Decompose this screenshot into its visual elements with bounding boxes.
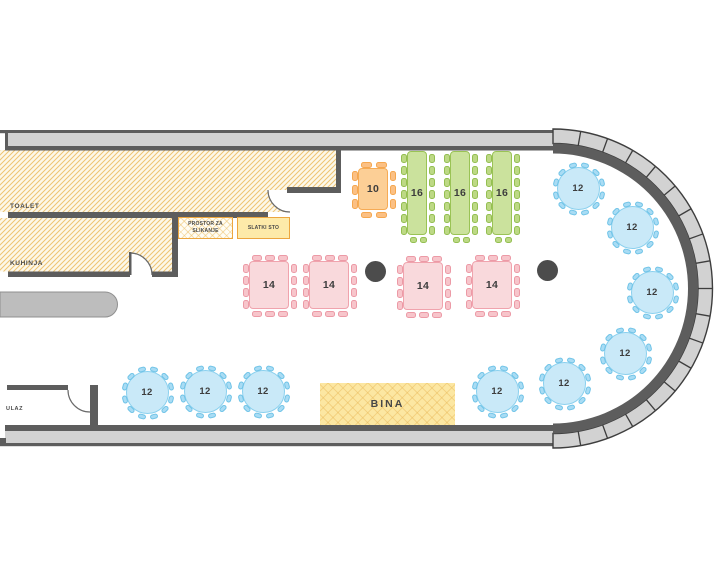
table-seat-count: 16 [496, 187, 508, 199]
chair [237, 381, 244, 390]
chair [351, 276, 357, 285]
chair [604, 332, 613, 341]
chair [486, 214, 492, 223]
chair [432, 312, 442, 318]
chair [338, 311, 348, 317]
chair [599, 178, 606, 187]
table-square-pink[interactable]: 14 [403, 262, 443, 310]
chair [635, 248, 644, 255]
chair [218, 404, 227, 413]
table-seat-count: 12 [626, 222, 637, 233]
chair [466, 288, 472, 297]
chair [471, 381, 478, 390]
chair [501, 311, 511, 317]
photo-area-box: PROSTOR ZA SLIKANJE [178, 217, 233, 239]
chair [137, 366, 146, 373]
chair [390, 199, 396, 210]
chair [237, 394, 244, 403]
chair [284, 394, 291, 403]
chair [486, 166, 492, 175]
chair [121, 382, 128, 391]
chair [628, 327, 637, 334]
chair [303, 276, 309, 285]
chair [488, 255, 498, 261]
chair [429, 202, 435, 211]
chair [568, 209, 577, 216]
table-long-green[interactable]: 16 [450, 151, 470, 235]
table-seat-count: 16 [454, 187, 466, 199]
chair [487, 365, 496, 372]
chair [406, 256, 416, 262]
chair [266, 412, 275, 419]
chair [655, 313, 664, 320]
chair [445, 301, 451, 310]
chair [514, 300, 520, 309]
chair [604, 366, 613, 375]
chair [444, 166, 450, 175]
chair [599, 356, 606, 365]
chair [486, 178, 492, 187]
chair [665, 271, 674, 280]
chair [622, 201, 631, 208]
chair [472, 190, 478, 199]
stage-box: BINA [320, 383, 455, 425]
table-seat-count: 14 [417, 280, 429, 292]
chair [655, 266, 664, 273]
chair [401, 214, 407, 223]
chair [518, 394, 525, 403]
chair [585, 373, 592, 382]
chair [243, 276, 249, 285]
chair [514, 166, 520, 175]
chair [390, 185, 396, 196]
chair [514, 264, 520, 273]
chair [638, 332, 647, 341]
chair [429, 190, 435, 199]
chair [195, 412, 204, 419]
chair [444, 226, 450, 235]
table-seat-count: 12 [199, 386, 210, 397]
chair [500, 365, 509, 372]
chair [253, 365, 262, 372]
chair [475, 255, 485, 261]
chair [419, 256, 429, 262]
chair [500, 412, 509, 419]
chair [397, 301, 403, 310]
chair [265, 311, 275, 317]
sweet-table-box: SLATKI STO [237, 217, 290, 239]
chair [410, 237, 417, 243]
chair [278, 311, 288, 317]
chair [278, 255, 288, 261]
table-long-green[interactable]: 16 [407, 151, 427, 235]
chair [401, 178, 407, 187]
chair [514, 202, 520, 211]
chair [242, 370, 251, 379]
chair [476, 370, 485, 379]
table-round-blue[interactable]: 12 [184, 370, 227, 413]
chair [150, 413, 159, 420]
chair [253, 412, 262, 419]
chair [397, 277, 403, 286]
table-seat-count: 12 [572, 183, 583, 194]
chair [284, 381, 291, 390]
table-seat-count: 16 [411, 187, 423, 199]
chair [486, 190, 492, 199]
chair [351, 300, 357, 309]
chair [445, 289, 451, 298]
chair [376, 212, 387, 218]
chair [626, 282, 633, 291]
chair [218, 370, 227, 379]
chair [642, 266, 651, 273]
chair [552, 191, 559, 200]
chair [160, 405, 169, 414]
table-long-green[interactable]: 16 [492, 151, 512, 235]
chair [401, 202, 407, 211]
chair [591, 201, 600, 210]
chair [351, 264, 357, 273]
chair [488, 311, 498, 317]
chair [463, 237, 470, 243]
chair [168, 395, 175, 404]
chair [554, 357, 563, 364]
chair [543, 362, 552, 371]
chair [543, 396, 552, 405]
chair [606, 230, 613, 239]
chair [486, 226, 492, 235]
chair [538, 386, 545, 395]
chair [352, 199, 358, 210]
chair [653, 217, 660, 226]
chair [429, 214, 435, 223]
chair [606, 217, 613, 226]
chair [429, 178, 435, 187]
chair [645, 206, 654, 215]
chair [472, 154, 478, 163]
chair [472, 202, 478, 211]
chair [631, 271, 640, 280]
chair [419, 312, 429, 318]
tables-layer: 1212121212121212121414141416161610 [0, 0, 722, 578]
chair [208, 412, 217, 419]
chair [276, 370, 285, 379]
pillar [537, 260, 558, 281]
chair [626, 295, 633, 304]
chair [243, 264, 249, 273]
ulaz-label: ULAZ [6, 406, 23, 412]
chair [466, 300, 472, 309]
chair [510, 404, 519, 413]
chair [242, 404, 251, 413]
chair [514, 154, 520, 163]
chair [276, 404, 285, 413]
chair [126, 371, 135, 380]
table-round-blue[interactable]: 12 [476, 370, 519, 413]
chair [567, 357, 576, 364]
chair [265, 255, 275, 261]
chair [611, 240, 620, 249]
chair [444, 154, 450, 163]
chair [538, 373, 545, 382]
chair [352, 171, 358, 182]
chair [291, 300, 297, 309]
chair [599, 191, 606, 200]
chair [303, 264, 309, 273]
chair [615, 327, 624, 334]
table-round-blue[interactable]: 12 [543, 362, 586, 405]
chair [514, 226, 520, 235]
chair [642, 313, 651, 320]
chair [645, 240, 654, 249]
chair [510, 370, 519, 379]
chair [303, 288, 309, 297]
table-square-pink[interactable]: 14 [249, 261, 289, 309]
table-seat-count: 12 [141, 387, 152, 398]
chair [208, 365, 217, 372]
chair [472, 166, 478, 175]
chair [554, 404, 563, 411]
table-round-blue[interactable]: 12 [631, 271, 674, 314]
chair [291, 264, 297, 273]
chair [581, 162, 590, 169]
photo-area-label: PROSTOR ZA SLIKANJE [188, 221, 223, 235]
chair [401, 190, 407, 199]
chair [628, 374, 637, 381]
chair [518, 381, 525, 390]
chair [137, 413, 146, 420]
chair [653, 230, 660, 239]
chair [312, 311, 322, 317]
chair [577, 362, 586, 371]
chair [514, 276, 520, 285]
chair [622, 248, 631, 255]
chair [615, 374, 624, 381]
chair [420, 237, 427, 243]
table-round-blue[interactable]: 12 [126, 371, 169, 414]
chair [466, 276, 472, 285]
chair [665, 305, 674, 314]
chair [121, 395, 128, 404]
chair [472, 226, 478, 235]
chair [466, 264, 472, 273]
chair [445, 277, 451, 286]
table-round-blue[interactable]: 12 [242, 370, 285, 413]
table-seat-count: 14 [263, 279, 275, 291]
chair [195, 365, 204, 372]
chair [432, 256, 442, 262]
pillar [365, 261, 386, 282]
chair [338, 255, 348, 261]
table-seat-count: 12 [491, 386, 502, 397]
table-seat-count: 12 [257, 386, 268, 397]
chair [168, 382, 175, 391]
table-seat-count: 12 [646, 287, 657, 298]
chair [325, 311, 335, 317]
table-square-pink[interactable]: 14 [472, 261, 512, 309]
chair [599, 343, 606, 352]
chair [552, 178, 559, 187]
toalet-label: TOALET [10, 203, 39, 210]
chair [486, 154, 492, 163]
chair [361, 212, 372, 218]
chair [585, 386, 592, 395]
chair [401, 154, 407, 163]
chair [226, 394, 233, 403]
chair [376, 162, 387, 168]
chair [179, 381, 186, 390]
chair [673, 282, 680, 291]
table-seat-count: 10 [367, 183, 379, 195]
table-square-pink[interactable]: 14 [309, 261, 349, 309]
chair [401, 166, 407, 175]
table-round-blue[interactable]: 12 [604, 332, 647, 375]
table-rect-orange[interactable]: 10 [358, 168, 388, 210]
chair [266, 365, 275, 372]
chair [557, 201, 566, 210]
chair [397, 289, 403, 298]
chair [184, 370, 193, 379]
chair [126, 405, 135, 414]
chair [471, 394, 478, 403]
chair [184, 404, 193, 413]
chair [577, 396, 586, 405]
table-seat-count: 12 [558, 378, 569, 389]
chair [150, 366, 159, 373]
chair [495, 237, 502, 243]
chair [475, 311, 485, 317]
chair [243, 300, 249, 309]
chair [291, 288, 297, 297]
chair [406, 312, 416, 318]
chair [252, 255, 262, 261]
chair [444, 178, 450, 187]
chair [505, 237, 512, 243]
chair [635, 201, 644, 208]
chair [472, 178, 478, 187]
table-seat-count: 12 [619, 348, 630, 359]
chair [646, 343, 653, 352]
chair [429, 154, 435, 163]
chair [429, 166, 435, 175]
table-seat-count: 14 [486, 279, 498, 291]
chair [486, 202, 492, 211]
chair [514, 190, 520, 199]
chair [226, 381, 233, 390]
chair [445, 265, 451, 274]
chair [514, 178, 520, 187]
chair [325, 255, 335, 261]
chair [312, 255, 322, 261]
chair [179, 394, 186, 403]
chair [487, 412, 496, 419]
chair [444, 214, 450, 223]
banquet-hall-floor-plan: 1212121212121212121414141416161610 TOALE… [0, 0, 722, 578]
chair [444, 190, 450, 199]
table-round-blue[interactable]: 12 [557, 167, 600, 210]
chair [429, 226, 435, 235]
chair [472, 214, 478, 223]
chair [351, 288, 357, 297]
chair [160, 371, 169, 380]
chair [514, 288, 520, 297]
chair [638, 366, 647, 375]
chair [401, 226, 407, 235]
chair [501, 255, 511, 261]
chair [252, 311, 262, 317]
chair [591, 167, 600, 176]
chair [243, 288, 249, 297]
chair [444, 202, 450, 211]
table-round-blue[interactable]: 12 [611, 206, 654, 249]
chair [514, 214, 520, 223]
chair [390, 171, 396, 182]
chair [567, 404, 576, 411]
chair [397, 265, 403, 274]
table-seat-count: 14 [323, 279, 335, 291]
chair [453, 237, 460, 243]
chair [631, 305, 640, 314]
chair [611, 206, 620, 215]
chair [361, 162, 372, 168]
chair [581, 209, 590, 216]
chair [303, 300, 309, 309]
chair [352, 185, 358, 196]
chair [673, 295, 680, 304]
chair [476, 404, 485, 413]
chair [291, 276, 297, 285]
kuhinja-label: KUHINJA [10, 260, 43, 267]
chair [646, 356, 653, 365]
chair [557, 167, 566, 176]
chair [568, 162, 577, 169]
